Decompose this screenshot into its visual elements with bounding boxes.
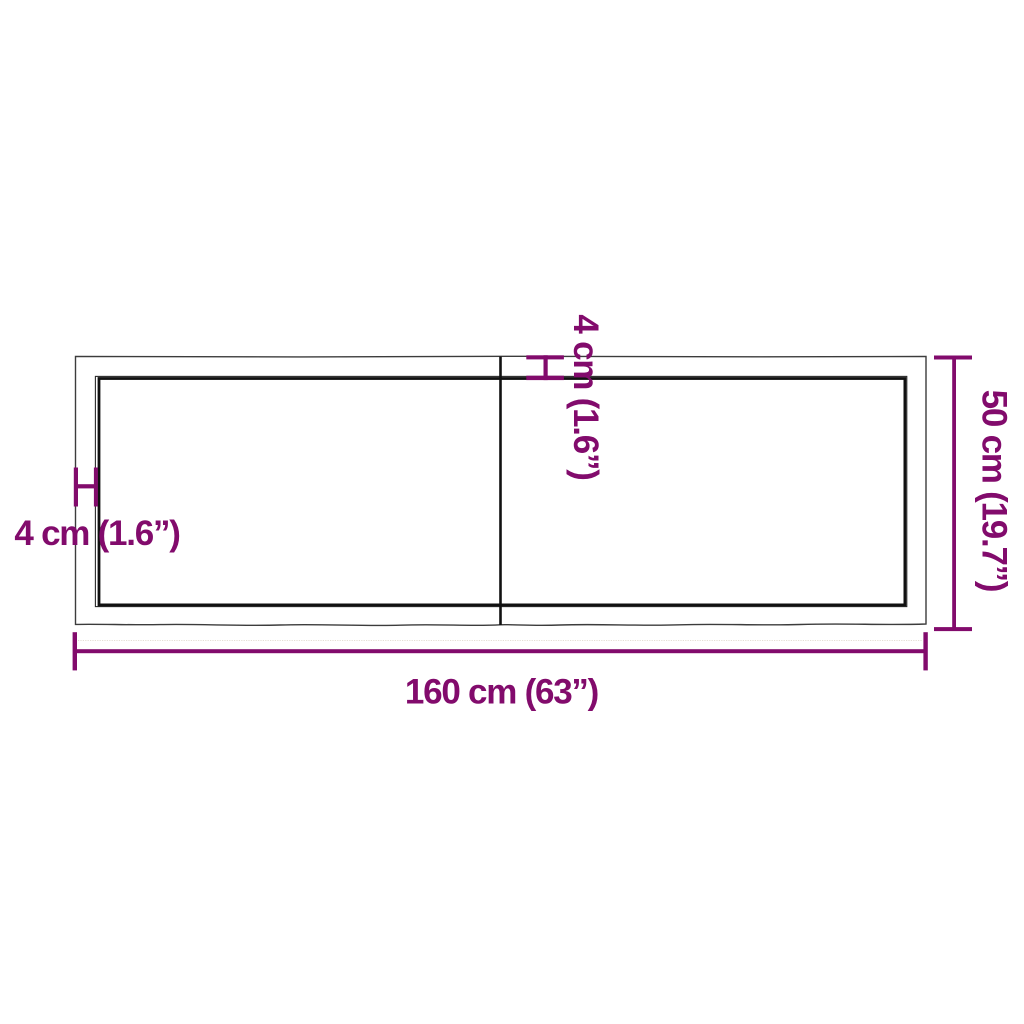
svg-text:4 cm (1.6”): 4 cm (1.6”): [566, 314, 605, 479]
svg-text:160 cm (63”): 160 cm (63”): [405, 673, 598, 712]
svg-text:50 cm (19.7”): 50 cm (19.7”): [975, 390, 1014, 592]
svg-text:4 cm (1.6”): 4 cm (1.6”): [14, 514, 179, 553]
